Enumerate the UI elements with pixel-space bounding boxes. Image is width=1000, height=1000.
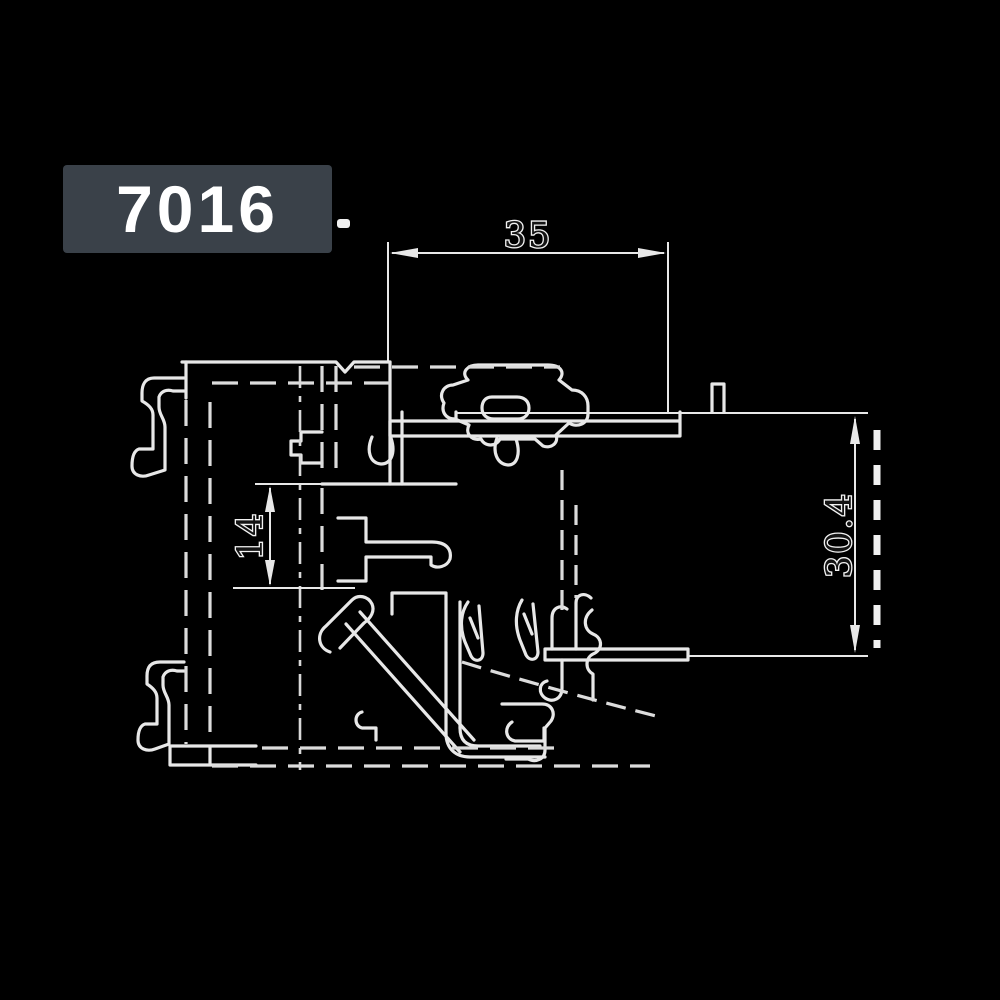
terminal-hook-inner (507, 722, 544, 741)
sash-bottom-bar (545, 649, 688, 660)
screenshot-root: 7016 (0, 0, 1000, 1000)
leaf-gasket (461, 602, 483, 660)
upper-left-clip (132, 378, 184, 476)
dashed-wall-lines (186, 366, 877, 770)
dimension-arrow (638, 248, 666, 258)
s-gasket (585, 610, 600, 700)
dimension-value-right-height: 30.4 (820, 492, 860, 578)
bottom-left-corner (170, 746, 256, 765)
dimension-arrow (265, 560, 275, 586)
sash-top-bar (390, 412, 680, 436)
mid-right-clip (338, 518, 450, 581)
left-tab (291, 432, 322, 463)
profile-linework (132, 362, 724, 765)
channel-loop (356, 712, 376, 740)
bar-hook (540, 660, 562, 700)
bar-hook (576, 595, 591, 649)
sash-top-stub (712, 384, 724, 412)
diagonal-strut (360, 612, 474, 740)
dimension-arrow (850, 625, 860, 653)
profile-drawing: 35 30.4 14 (0, 0, 1000, 1000)
dimension-inner-height: 14 (231, 484, 355, 588)
dimension-top-width: 35 (388, 216, 668, 412)
dimension-arrow (390, 248, 418, 258)
dimension-value-inner-height: 14 (231, 512, 271, 561)
lower-left-clip (138, 662, 184, 750)
bar-hook (552, 607, 567, 649)
dimension-arrow (265, 486, 275, 512)
leaf-gasket (516, 600, 538, 659)
gasket-cluster-inner (482, 397, 529, 419)
diagonal-strut (346, 624, 460, 752)
dimension-arrow (850, 416, 860, 444)
dimension-value-top-width: 35 (504, 216, 553, 256)
